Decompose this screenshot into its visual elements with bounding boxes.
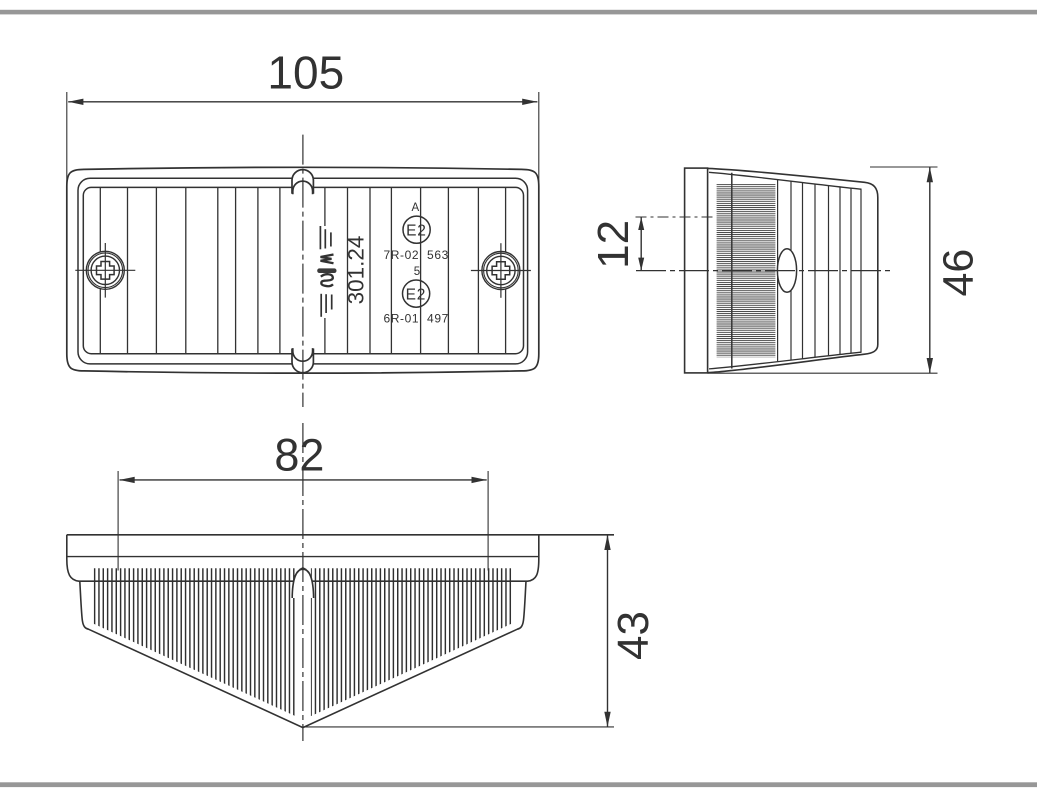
svg-text:46: 46 (935, 249, 983, 297)
svg-text:105: 105 (267, 46, 344, 98)
svg-text:E2: E2 (406, 222, 427, 239)
svg-text:E2: E2 (406, 286, 427, 303)
svg-text:A: A (411, 202, 419, 214)
svg-text:6R-01 497: 6R-01 497 (384, 311, 449, 325)
svg-text:43: 43 (609, 611, 658, 660)
svg-text:7R-02 563: 7R-02 563 (384, 248, 449, 262)
svg-text:12: 12 (589, 220, 638, 269)
svg-text:301.24: 301.24 (343, 236, 368, 305)
svg-text:82: 82 (274, 429, 324, 480)
svg-text:5: 5 (414, 266, 420, 278)
